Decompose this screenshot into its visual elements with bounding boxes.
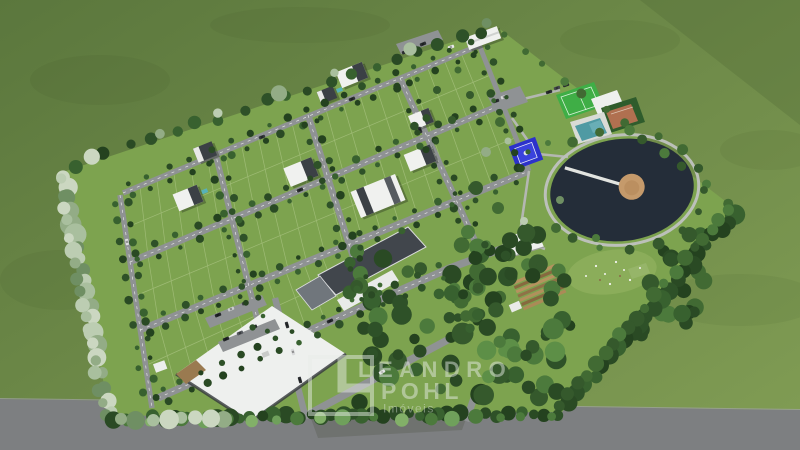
aerial-render-image: LEANDRO POHL Imóveis bbox=[0, 0, 800, 450]
watermark-brand-last-name: POHL bbox=[381, 378, 463, 404]
planter bbox=[378, 283, 383, 288]
masterplan-scene: LEANDRO POHL Imóveis bbox=[0, 0, 800, 450]
watermark-tagline: Imóveis bbox=[383, 402, 435, 416]
